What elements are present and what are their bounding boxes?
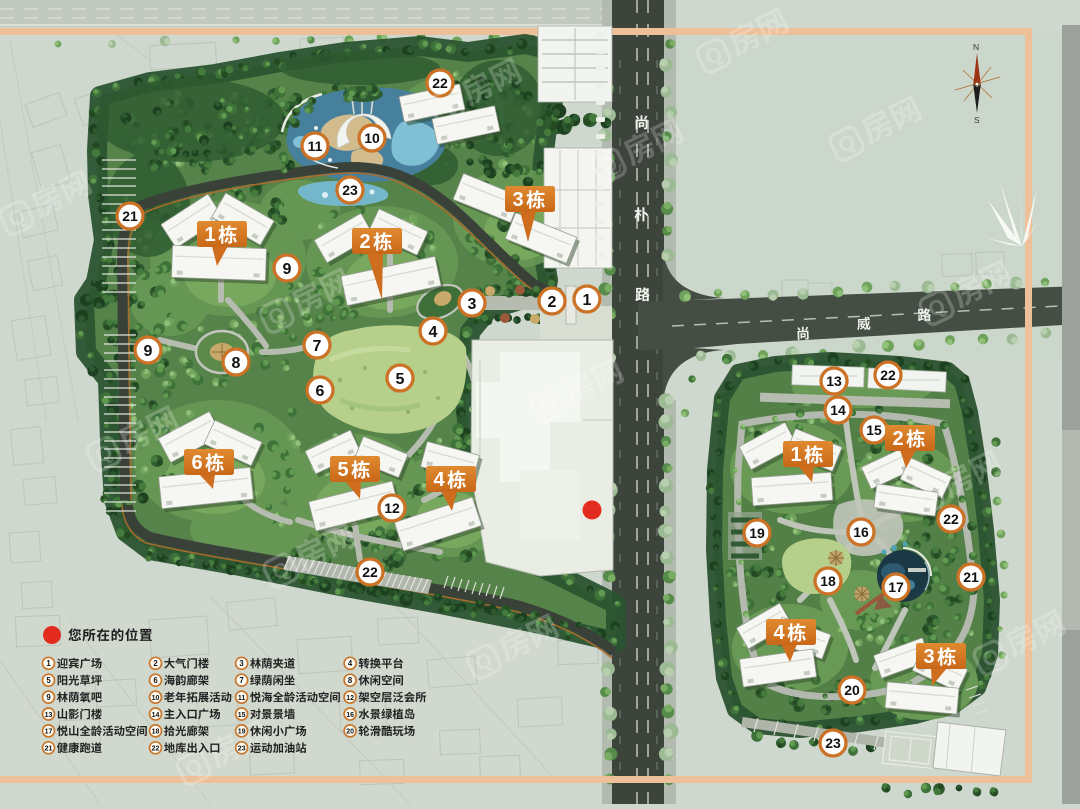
svg-text:9: 9 <box>144 343 153 360</box>
svg-text:4: 4 <box>348 659 353 668</box>
svg-text:18: 18 <box>820 573 836 589</box>
svg-text:9: 9 <box>283 261 292 278</box>
svg-text:6: 6 <box>153 676 158 685</box>
svg-text:12: 12 <box>346 695 354 702</box>
svg-text:10: 10 <box>152 695 160 702</box>
svg-text:5: 5 <box>396 371 405 388</box>
svg-text:6: 6 <box>191 452 202 474</box>
svg-text:18: 18 <box>152 729 160 736</box>
svg-text:1: 1 <box>204 224 215 246</box>
svg-text:1: 1 <box>790 444 801 466</box>
svg-text:22: 22 <box>880 367 896 383</box>
svg-text:12: 12 <box>384 500 400 516</box>
svg-text:20: 20 <box>346 729 354 736</box>
svg-text:3: 3 <box>239 659 244 668</box>
svg-text:23: 23 <box>342 182 358 198</box>
svg-text:22: 22 <box>152 746 160 753</box>
svg-text:1: 1 <box>583 292 592 309</box>
svg-text:22: 22 <box>362 564 378 580</box>
svg-text:3: 3 <box>512 189 523 211</box>
svg-text:2: 2 <box>892 428 903 450</box>
svg-text:23: 23 <box>825 735 841 751</box>
svg-text:10: 10 <box>364 130 380 146</box>
svg-text:6: 6 <box>316 383 325 400</box>
svg-text:11: 11 <box>238 695 246 702</box>
svg-text:14: 14 <box>152 712 160 719</box>
svg-text:17: 17 <box>45 729 53 736</box>
svg-text:S: S <box>974 115 980 125</box>
svg-text:21: 21 <box>45 746 53 753</box>
svg-text:9: 9 <box>46 693 51 702</box>
svg-text:5: 5 <box>337 459 348 481</box>
svg-text:19: 19 <box>749 525 765 541</box>
svg-text:22: 22 <box>432 75 448 91</box>
svg-text:16: 16 <box>346 712 354 719</box>
svg-text:4: 4 <box>429 324 438 341</box>
svg-text:4: 4 <box>433 469 445 491</box>
svg-text:2: 2 <box>359 231 370 253</box>
svg-text:7: 7 <box>313 338 322 355</box>
svg-text:15: 15 <box>866 422 882 438</box>
svg-text:17: 17 <box>888 579 904 595</box>
svg-text:8: 8 <box>232 355 241 372</box>
svg-text:2: 2 <box>548 294 557 311</box>
svg-text:1: 1 <box>46 659 51 668</box>
svg-text:13: 13 <box>826 373 842 389</box>
svg-text:20: 20 <box>844 682 860 698</box>
svg-text:4: 4 <box>773 622 785 644</box>
svg-text:22: 22 <box>943 511 959 527</box>
svg-text:23: 23 <box>238 746 246 753</box>
svg-text:2: 2 <box>153 659 158 668</box>
svg-text:N: N <box>973 42 979 52</box>
svg-text:13: 13 <box>45 712 53 719</box>
svg-text:21: 21 <box>122 208 138 224</box>
svg-text:16: 16 <box>853 524 869 540</box>
svg-text:8: 8 <box>348 676 353 685</box>
svg-text:14: 14 <box>830 402 846 418</box>
svg-text:15: 15 <box>238 712 246 719</box>
svg-text:3: 3 <box>468 296 477 313</box>
svg-text:5: 5 <box>46 676 51 685</box>
svg-text:7: 7 <box>239 676 243 685</box>
svg-text:11: 11 <box>308 138 323 154</box>
svg-text:3: 3 <box>923 646 934 668</box>
svg-text:19: 19 <box>238 729 246 736</box>
svg-text:21: 21 <box>963 569 979 585</box>
